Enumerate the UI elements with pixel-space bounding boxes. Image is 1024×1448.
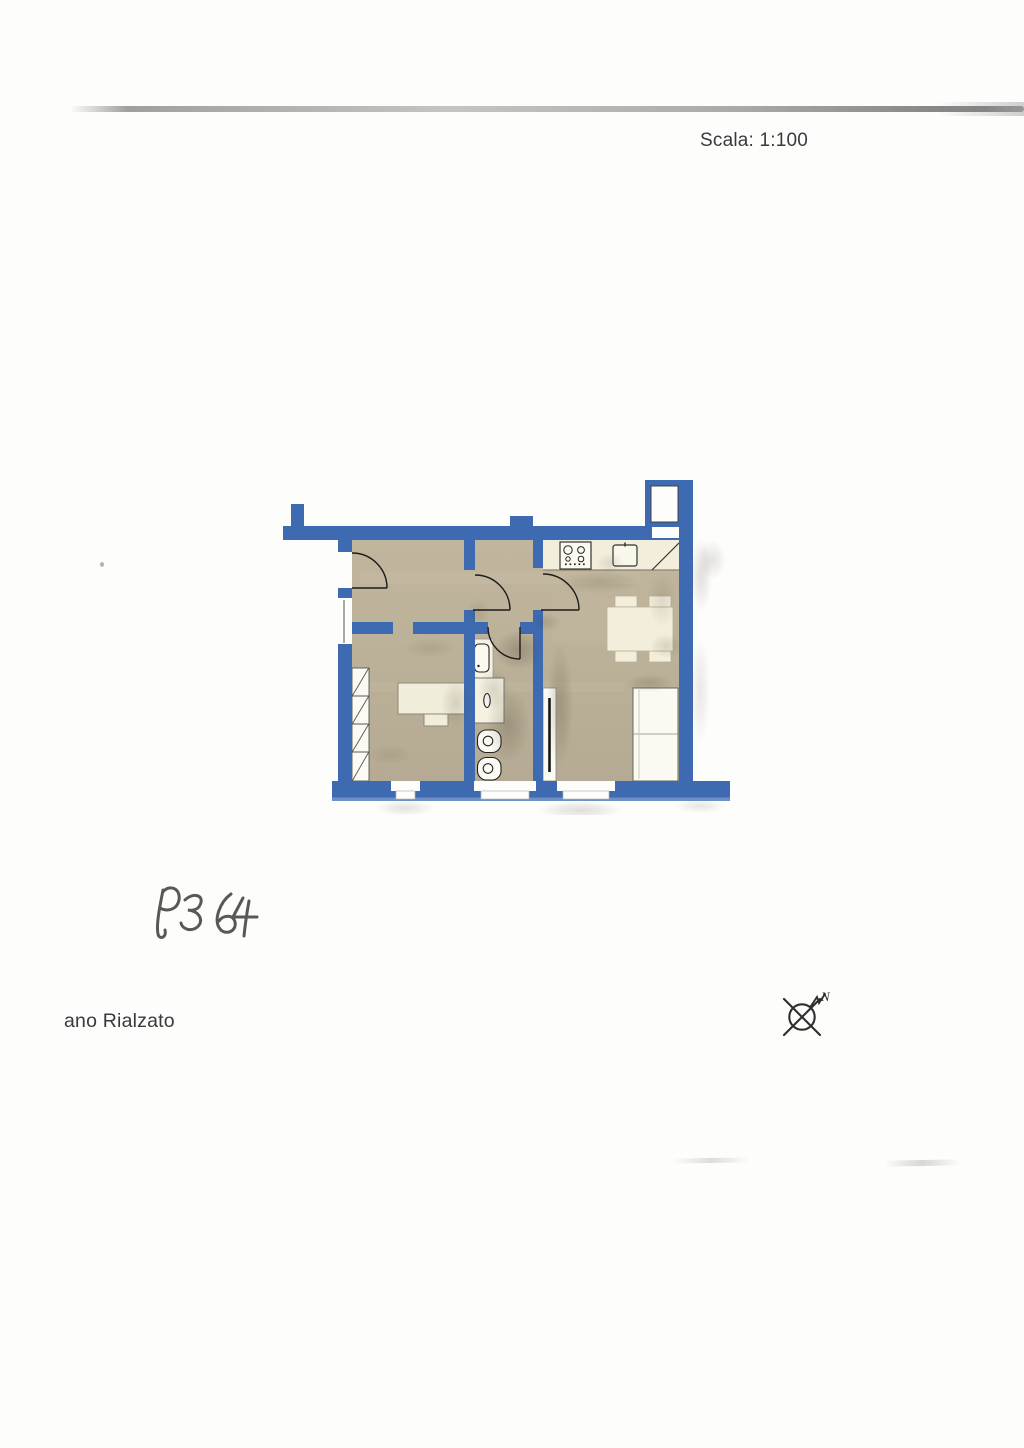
- scan-streak: [884, 1159, 960, 1166]
- top-wall-stub: [510, 516, 533, 527]
- sofa: [633, 688, 678, 781]
- left-wall-window: [338, 598, 352, 644]
- scan-artifact-wedge: [936, 102, 1024, 116]
- north-compass-icon: N: [775, 985, 835, 1040]
- chimney-stub: [291, 504, 304, 528]
- floor-plan: [260, 455, 740, 815]
- scanned-floorplan-page: Scala: 1:100: [0, 0, 1024, 1448]
- scale-label: Scala: 1:100: [700, 130, 808, 152]
- dining-chair: [615, 596, 637, 607]
- cooktop: [560, 542, 591, 569]
- scan-artifact-line: [70, 106, 1024, 112]
- wall-notch: [652, 527, 679, 538]
- compass-north-label: N: [820, 989, 831, 1004]
- dining-chair: [615, 651, 637, 662]
- living-room-window: [557, 781, 615, 799]
- wall-light-edge: [332, 798, 730, 802]
- wardrobe: [352, 668, 369, 781]
- vent-shaft-opening: [651, 486, 678, 522]
- handwritten-code: P364: [143, 880, 273, 942]
- scan-speck: [100, 562, 104, 567]
- floor-level-label: ano Rialzato: [64, 1010, 175, 1033]
- bathroom-window: [474, 781, 536, 799]
- scan-streak: [672, 1157, 750, 1163]
